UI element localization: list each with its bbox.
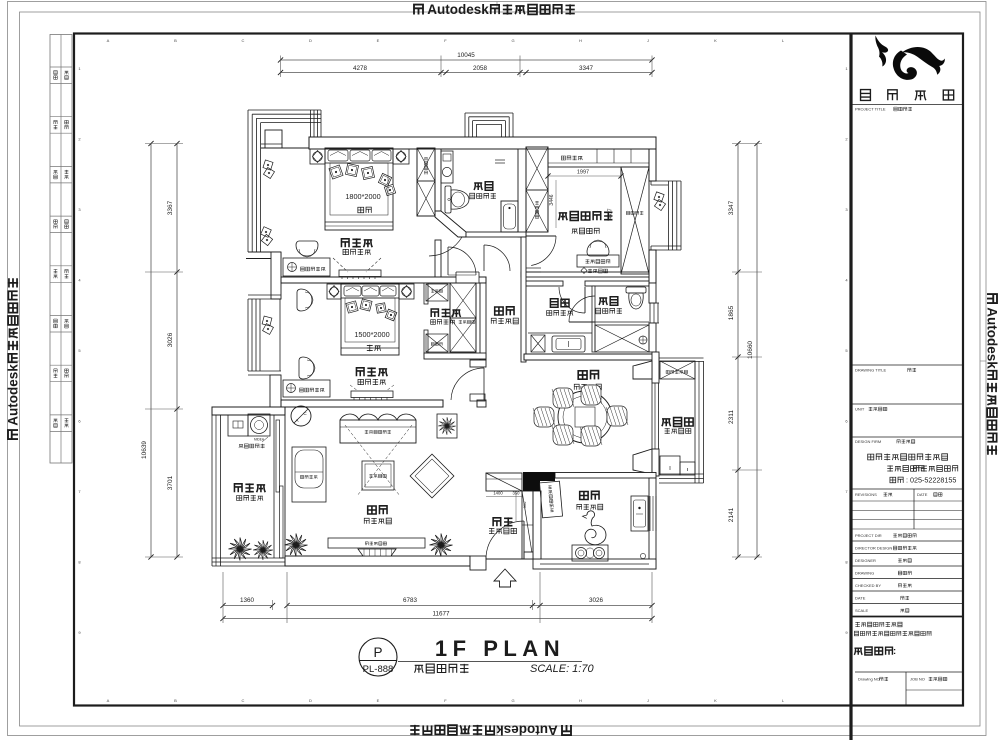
svg-text:DATE: DATE [917,492,928,497]
svg-text:H: H [579,38,582,43]
svg-text:10660: 10660 [747,341,754,359]
svg-text:1800*2000: 1800*2000 [345,192,380,201]
svg-text:3446: 3446 [549,194,555,205]
svg-text:3026: 3026 [589,597,604,604]
svg-text:SCALE: 1:70: SCALE: 1:70 [530,663,594,675]
svg-text:DRAWING TITLE: DRAWING TITLE [855,368,886,373]
svg-text:K: K [714,698,717,703]
svg-text:D: D [309,698,312,703]
svg-text:PL-888: PL-888 [363,664,394,675]
svg-text:1F PLAN: 1F PLAN [435,636,565,661]
svg-text:3347: 3347 [728,200,735,215]
svg-text::: : [893,646,896,657]
svg-text:2058: 2058 [473,65,488,72]
svg-text:2311: 2311 [728,410,735,424]
svg-text:E: E [377,38,380,43]
svg-text:REVISIONS: REVISIONS [855,492,877,497]
svg-text:PROJECT DIR: PROJECT DIR [855,533,882,538]
svg-text:A: A [107,698,110,703]
svg-text:Autodesk: Autodesk [985,307,1000,369]
svg-text:SCALE: SCALE [855,608,868,613]
svg-text:: 025-52228155: : 025-52228155 [906,476,956,485]
svg-text:UNIT: UNIT [855,407,865,412]
svg-text:3367: 3367 [167,200,174,215]
svg-text:D: D [309,38,312,43]
svg-text::: : [921,466,923,473]
svg-text:1500*2000: 1500*2000 [354,330,389,339]
svg-text:J: J [647,38,649,43]
svg-text:G: G [511,698,514,703]
svg-text:4417: 4417 [608,208,614,219]
svg-text:P: P [373,645,382,660]
svg-text:Drawing NO: Drawing NO [858,677,880,682]
svg-text:PROJECT TITLE: PROJECT TITLE [855,107,886,112]
svg-text:C: C [242,698,245,703]
svg-text:11677: 11677 [432,611,450,618]
svg-text:1400: 1400 [493,491,503,496]
svg-text:K: K [714,38,717,43]
svg-text:B: B [174,698,177,703]
svg-text:Autodesk: Autodesk [6,364,21,426]
svg-text:350: 350 [513,491,521,496]
svg-text:C: C [242,38,245,43]
svg-text:A: A [107,38,110,43]
svg-text:1865: 1865 [728,305,735,320]
svg-text:G: G [511,38,514,43]
svg-text:B: B [174,38,177,43]
svg-text:4278: 4278 [353,65,368,72]
svg-text:3701: 3701 [167,475,174,490]
svg-text:6783: 6783 [403,597,418,604]
svg-text:Autodesk: Autodesk [496,723,558,738]
svg-text:1997: 1997 [577,170,589,176]
svg-text:DESIGNER: DESIGNER [855,558,876,563]
svg-text:DATE: DATE [855,596,866,601]
svg-text:10639: 10639 [141,441,148,459]
svg-text:H: H [579,698,582,703]
svg-text:DIRECTOR DESIGN: DIRECTOR DESIGN [855,546,892,551]
svg-text:JOB NO: JOB NO [910,677,925,682]
svg-text:DESIGN FIRM: DESIGN FIRM [855,439,881,444]
svg-text:3026: 3026 [167,332,174,347]
svg-text:10045: 10045 [457,52,475,59]
svg-text:Autodesk: Autodesk [427,2,489,17]
svg-text:J: J [647,698,649,703]
svg-text:350: 350 [522,501,527,508]
svg-text:1360: 1360 [240,597,255,604]
svg-text:3347: 3347 [579,65,594,72]
svg-text:2141: 2141 [728,507,735,522]
svg-text:E: E [377,698,380,703]
svg-text:A: A [295,418,298,423]
svg-text:CHECKED BY: CHECKED BY [855,583,881,588]
svg-text:DRAWING: DRAWING [855,571,874,576]
